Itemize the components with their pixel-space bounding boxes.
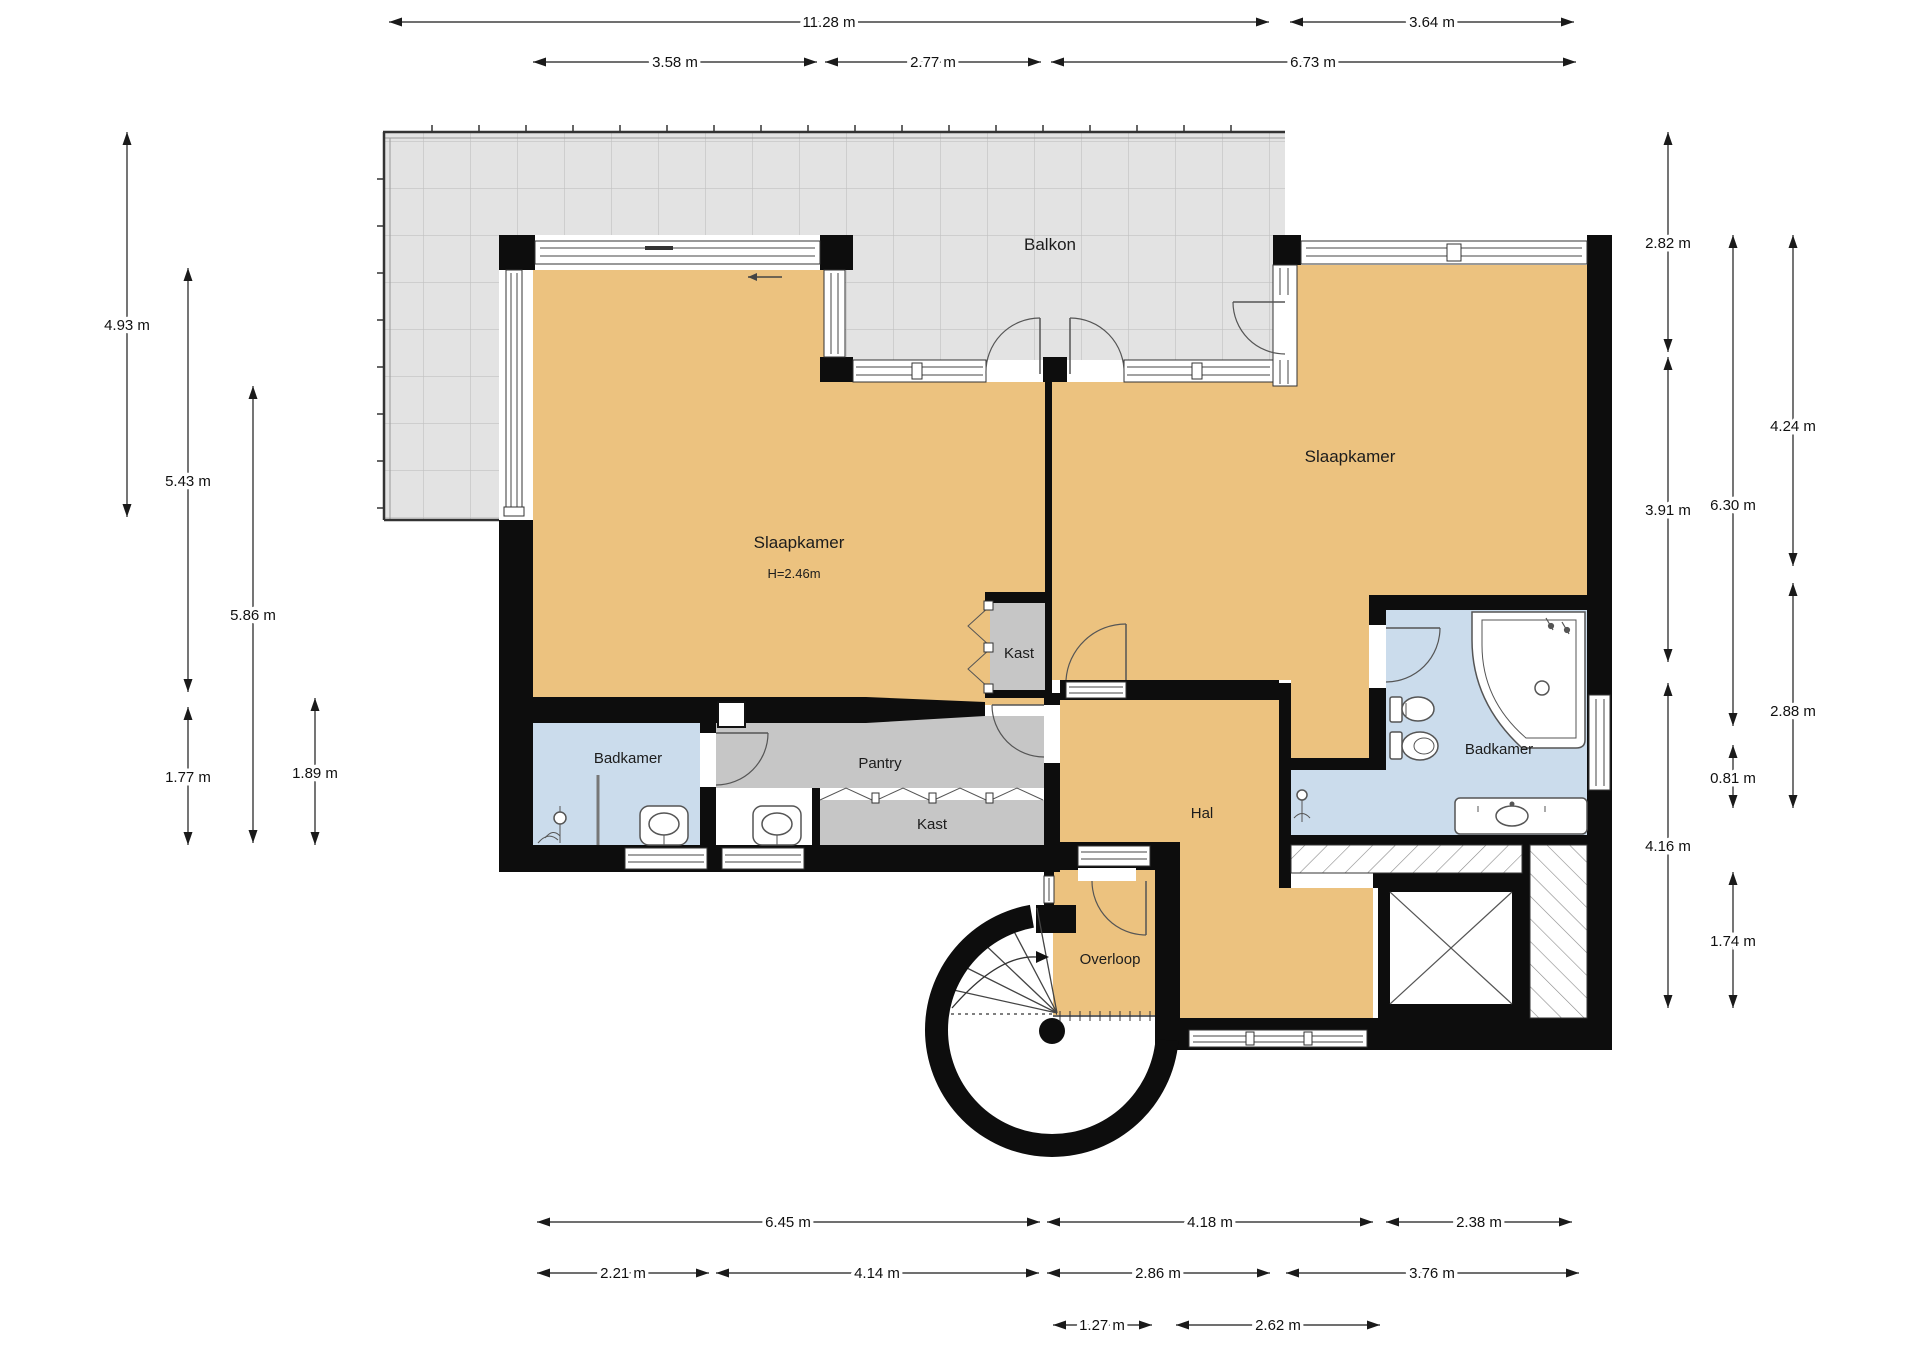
dim-right-6: 1.74 m bbox=[1710, 872, 1756, 1008]
label-kast-upper: Kast bbox=[1004, 645, 1035, 662]
dim-left-5: 1.89 m bbox=[292, 698, 338, 845]
svg-text:2.77 m: 2.77 m bbox=[910, 54, 956, 71]
floor-plan-page: Balkon bbox=[0, 0, 1920, 1358]
svg-text:2.82 m: 2.82 m bbox=[1645, 235, 1691, 252]
dim-right-7: 4.24 m bbox=[1770, 235, 1816, 566]
label-ceiling-height: H=2.46m bbox=[767, 566, 820, 581]
label-pantry: Pantry bbox=[858, 755, 902, 772]
svg-text:2.88 m: 2.88 m bbox=[1770, 703, 1816, 720]
duct bbox=[718, 702, 745, 727]
svg-text:3.58 m: 3.58 m bbox=[652, 54, 698, 71]
svg-text:3.64 m: 3.64 m bbox=[1409, 14, 1455, 31]
label-overloop: Overloop bbox=[1080, 951, 1141, 968]
window bbox=[1066, 682, 1126, 698]
window bbox=[1273, 265, 1297, 386]
sink-icon bbox=[753, 806, 801, 845]
svg-text:4.24 m: 4.24 m bbox=[1770, 418, 1816, 435]
window bbox=[853, 360, 986, 382]
sink-icon bbox=[640, 806, 688, 845]
dim-bottom1-2: 4.18 m bbox=[1047, 1214, 1373, 1231]
dim-left-4: 1.77 m bbox=[165, 707, 211, 845]
dim-right-4: 6.30 m bbox=[1710, 235, 1756, 726]
bidet-icon bbox=[1390, 732, 1438, 760]
dim-bottom3-1: 1.27 m bbox=[1053, 1317, 1152, 1334]
svg-text:6.73 m: 6.73 m bbox=[1290, 54, 1336, 71]
svg-text:5.86 m: 5.86 m bbox=[230, 607, 276, 624]
toilet-icon bbox=[1390, 697, 1434, 722]
dim-left-2: 5.43 m bbox=[165, 268, 211, 692]
svg-text:1.89 m: 1.89 m bbox=[292, 765, 338, 782]
window bbox=[535, 241, 820, 264]
window bbox=[1301, 241, 1587, 264]
room-badkamer-right-shower-strip bbox=[1291, 770, 1386, 835]
dim-top-inner-2: 2.77 m bbox=[825, 54, 1041, 71]
svg-text:3.76 m: 3.76 m bbox=[1409, 1265, 1455, 1282]
elevator-shaft bbox=[1390, 892, 1512, 1004]
dim-bottom1-3: 2.38 m bbox=[1386, 1214, 1572, 1231]
floor-plan-svg: Balkon bbox=[0, 0, 1920, 1358]
svg-text:2.21 m: 2.21 m bbox=[600, 1265, 646, 1282]
window bbox=[1589, 695, 1610, 790]
svg-text:5.43 m: 5.43 m bbox=[165, 473, 211, 490]
window bbox=[504, 270, 524, 516]
svg-text:11.28 m: 11.28 m bbox=[802, 14, 855, 31]
dim-left-3: 5.86 m bbox=[230, 386, 276, 843]
dim-right-3: 4.16 m bbox=[1645, 683, 1691, 1008]
svg-text:1.27 m: 1.27 m bbox=[1079, 1317, 1125, 1334]
window bbox=[1078, 846, 1150, 866]
dim-top-inner-3: 6.73 m bbox=[1051, 54, 1576, 71]
window bbox=[1124, 360, 1273, 382]
dim-right-8: 2.88 m bbox=[1770, 583, 1816, 808]
svg-text:0.81 m: 0.81 m bbox=[1710, 770, 1756, 787]
window bbox=[824, 270, 845, 357]
svg-text:2.38 m: 2.38 m bbox=[1456, 1214, 1502, 1231]
label-kast-lower: Kast bbox=[917, 816, 948, 833]
label-badkamer-left: Badkamer bbox=[594, 750, 662, 767]
dim-bottom3-2: 2.62 m bbox=[1176, 1317, 1380, 1334]
hatched-area bbox=[1530, 845, 1587, 1018]
dim-left-1: 4.93 m bbox=[104, 132, 150, 517]
svg-text:1.77 m: 1.77 m bbox=[165, 769, 211, 786]
window bbox=[722, 848, 804, 869]
svg-text:6.45 m: 6.45 m bbox=[765, 1214, 811, 1231]
dim-bottom2-4: 3.76 m bbox=[1286, 1265, 1579, 1282]
dim-right-2: 3.91 m bbox=[1645, 357, 1691, 662]
dim-top-outer-1: 11.28 m bbox=[389, 14, 1269, 31]
svg-text:4.18 m: 4.18 m bbox=[1187, 1214, 1233, 1231]
dim-bottom2-3: 2.86 m bbox=[1047, 1265, 1270, 1282]
room-overloop bbox=[1053, 870, 1155, 1015]
label-slaapkamer-right: Slaapkamer bbox=[1305, 447, 1396, 466]
svg-text:4.14 m: 4.14 m bbox=[854, 1265, 900, 1282]
svg-text:6.30 m: 6.30 m bbox=[1710, 497, 1756, 514]
svg-text:4.16 m: 4.16 m bbox=[1645, 838, 1691, 855]
label-balkon: Balkon bbox=[1024, 235, 1076, 254]
svg-text:2.86 m: 2.86 m bbox=[1135, 1265, 1181, 1282]
svg-text:2.62 m: 2.62 m bbox=[1255, 1317, 1301, 1334]
window bbox=[1044, 876, 1054, 903]
label-badkamer-right: Badkamer bbox=[1465, 741, 1533, 758]
dim-top-inner-1: 3.58 m bbox=[533, 54, 817, 71]
hatched-area bbox=[1291, 845, 1522, 873]
stair-center-pole bbox=[1039, 1018, 1065, 1044]
label-slaapkamer-left: Slaapkamer bbox=[754, 533, 845, 552]
dim-right-1: 2.82 m bbox=[1645, 132, 1691, 352]
dim-right-5: 0.81 m bbox=[1710, 745, 1756, 808]
dim-top-outer-2: 3.64 m bbox=[1290, 14, 1574, 31]
dim-bottom2-2: 4.14 m bbox=[716, 1265, 1039, 1282]
dim-bottom2-1: 2.21 m bbox=[537, 1265, 709, 1282]
window bbox=[1189, 1030, 1367, 1047]
svg-text:1.74 m: 1.74 m bbox=[1710, 933, 1756, 950]
svg-text:4.93 m: 4.93 m bbox=[104, 317, 150, 334]
dim-bottom1-1: 6.45 m bbox=[537, 1214, 1040, 1231]
window bbox=[625, 848, 707, 869]
vanity-sink-icon bbox=[1455, 798, 1587, 834]
svg-text:3.91 m: 3.91 m bbox=[1645, 502, 1691, 519]
label-hal: Hal bbox=[1191, 805, 1214, 822]
